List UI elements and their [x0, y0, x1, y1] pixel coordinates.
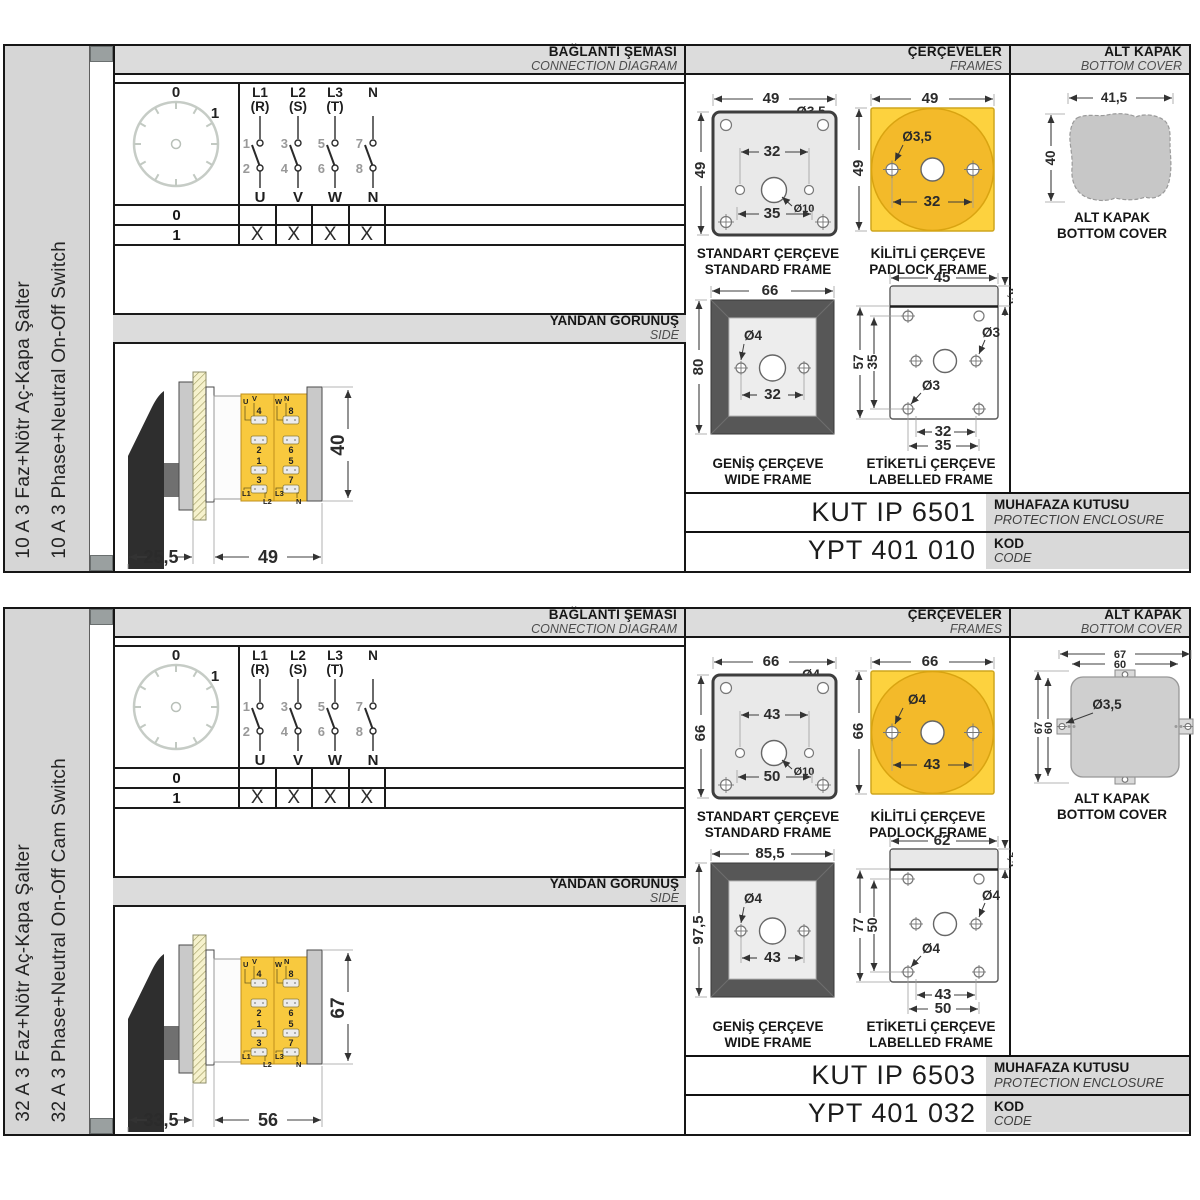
table-cell [277, 206, 314, 224]
phase-column-l3: L3(T) 56 W [318, 648, 344, 767]
svg-text:66: 66 [763, 653, 780, 670]
svg-text:L3: L3 [327, 648, 343, 663]
phase-column-n: N 78 N [356, 85, 379, 204]
header-frames-tr: ÇERÇEVELER [908, 45, 1002, 60]
svg-text:35: 35 [935, 437, 952, 454]
mounting-plate [179, 382, 193, 510]
svg-text:V: V [252, 394, 257, 403]
table-cell [240, 769, 277, 787]
table-cell [277, 769, 314, 787]
phase-column-l2: L2(S) 34 V [281, 85, 307, 204]
svg-text:45: 45 [934, 270, 951, 286]
svg-text:35: 35 [764, 205, 781, 222]
wide-frame-drawing: 85,5 97,5 Ø4 43 [693, 845, 843, 1015]
table-cell [240, 206, 277, 224]
svg-text:Ø3,5: Ø3,5 [1092, 697, 1122, 712]
switch-body: UV 42 13 L1L2 WN 86 57 L3N [241, 957, 307, 1069]
svg-text:N: N [368, 85, 378, 100]
row-label: 0 [115, 769, 240, 787]
svg-text:(T): (T) [326, 662, 343, 677]
dial-position-on: 1 [211, 105, 219, 122]
product-title-turkish: 32 A 3 Faz+Nötr Aç-Kapa Şalter [13, 844, 35, 1122]
svg-text:62: 62 [934, 833, 951, 849]
svg-text:32: 32 [764, 386, 781, 403]
standard-frame-drawing: 49 Ø3,5 49 32 Ø10 35 [693, 90, 843, 242]
rotary-dial-drawing: 0 1 [115, 647, 237, 767]
svg-text:(R): (R) [251, 662, 270, 677]
svg-text:L1: L1 [252, 648, 268, 663]
enclosure-label: MUHAFAZA KUTUSU PROTECTION ENCLOSURE [986, 494, 1189, 531]
end-cap [307, 387, 322, 501]
phase-column-l2: L2(S) 34 V [281, 648, 307, 767]
standard-frame-caption: STANDART ÇERÇEVESTANDARD FRAME [681, 246, 855, 277]
labelled-frame-drawing: 45 6,5 57 35 Ø3 Ø3 32 35 [848, 270, 1013, 455]
table-cell-empty [386, 789, 684, 807]
svg-text:9,5: 9,5 [1006, 851, 1013, 866]
svg-text:8: 8 [356, 161, 363, 176]
header-connection-tr: BAĞLANTI ŞEMASI [549, 608, 677, 623]
panel-wall-hatched [193, 372, 206, 520]
svg-text:6: 6 [288, 1008, 293, 1018]
svg-text:50: 50 [865, 917, 880, 932]
switch-handle [128, 951, 179, 1132]
product-panel: 10 A 3 Faz+Nötr Aç-Kapa Şalter 10 A 3 Ph… [3, 44, 1191, 573]
front-plate [206, 387, 214, 502]
header-connection-tr: BAĞLANTI ŞEMASI [549, 45, 677, 60]
svg-text:V: V [293, 189, 303, 204]
code-label: KOD CODE [986, 1096, 1189, 1133]
svg-text:(R): (R) [251, 99, 270, 114]
dimension-height: 40 [323, 387, 353, 501]
svg-text:L3: L3 [275, 489, 284, 498]
svg-text:1: 1 [243, 136, 250, 151]
svg-text:1: 1 [243, 699, 250, 714]
svg-text:66: 66 [762, 282, 779, 299]
svg-text:80: 80 [693, 359, 707, 376]
svg-text:41,5: 41,5 [1101, 90, 1128, 105]
svg-text:7: 7 [356, 699, 363, 714]
binder-mark-bottom [90, 555, 113, 571]
header-connection-diagram: BAĞLANTI ŞEMASI CONNECTION DIAGRAM [115, 46, 684, 75]
header-cover-en: BOTTOM COVER [1081, 623, 1182, 637]
table-cell: X [240, 789, 277, 807]
table-cell: X [277, 226, 314, 244]
svg-text:2: 2 [256, 1008, 261, 1018]
labelled-frame-caption: ETİKETLİ ÇERÇEVELABELLED FRAME [841, 456, 1021, 487]
rotary-dial-drawing: 0 1 [115, 84, 237, 204]
svg-text:L2: L2 [263, 497, 272, 506]
svg-text:W: W [275, 960, 283, 969]
enclosure-row: KUT IP 6501 MUHAFAZA KUTUSU PROTECTION E… [684, 492, 1189, 531]
svg-text:25,5: 25,5 [143, 547, 178, 567]
svg-text:N: N [368, 189, 379, 204]
svg-text:Ø10: Ø10 [794, 203, 815, 215]
front-plate [206, 950, 214, 1065]
svg-text:43: 43 [924, 756, 941, 773]
svg-text:L1: L1 [252, 85, 268, 100]
svg-text:6: 6 [318, 161, 325, 176]
svg-text:4: 4 [281, 161, 289, 176]
binder-strip [90, 609, 113, 1134]
svg-text:5: 5 [318, 136, 325, 151]
dimension-body-depth: 56 [214, 1066, 322, 1130]
table-cell: X [350, 226, 387, 244]
table-row: 0 [115, 206, 684, 226]
header-side-view: YANDAN GÖRÜNÜŞ SIDE [113, 313, 686, 344]
svg-text:2: 2 [243, 724, 250, 739]
svg-text:4: 4 [256, 406, 261, 416]
svg-text:35: 35 [865, 354, 880, 370]
header-frames-en: FRAMES [950, 623, 1002, 637]
svg-text:40: 40 [328, 434, 349, 455]
product-sidebar: 32 A 3 Faz+Nötr Aç-Kapa Şalter 32 A 3 Ph… [5, 609, 90, 1134]
svg-text:49: 49 [763, 90, 780, 107]
header-connection-diagram: BAĞLANTI ŞEMASI CONNECTION DIAGRAM [115, 609, 684, 638]
wide-frame-caption: GENİŞ ÇERÇEVEWIDE FRAME [681, 456, 855, 487]
svg-text:49: 49 [258, 547, 278, 567]
svg-text:N: N [296, 497, 301, 506]
table-cell-empty [386, 769, 684, 787]
svg-text:66: 66 [693, 725, 709, 742]
product-title-turkish: 10 A 3 Faz+Nötr Aç-Kapa Şalter [13, 281, 35, 559]
standard-frame-caption: STANDART ÇERÇEVESTANDARD FRAME [681, 809, 855, 840]
table-cell: X [313, 226, 350, 244]
svg-text:L1: L1 [242, 1052, 251, 1061]
header-cover-tr: ALT KAPAK [1104, 608, 1182, 623]
end-cap [307, 950, 322, 1064]
product-title-english: 10 A 3 Phase+Neutral On-Off Switch [49, 241, 71, 559]
svg-text:W: W [275, 397, 283, 406]
header-connection-en: CONNECTION DIAGRAM [531, 623, 677, 637]
table-row: 1 X X X X [115, 789, 684, 807]
svg-text:7: 7 [288, 1038, 293, 1048]
table-cell [313, 769, 350, 787]
contacts-drawing: L1(R) 12 U L2(S) 34 V L3(T) 56 W [240, 84, 684, 204]
svg-text:Ø4: Ø4 [744, 328, 763, 343]
svg-text:Ø3: Ø3 [922, 378, 941, 393]
connection-diagram-box: 0 1 L1(R) 12 U L2(S) 34 V L3(T) [113, 645, 686, 769]
table-cell: X [350, 789, 387, 807]
svg-text:6: 6 [318, 724, 325, 739]
svg-text:N: N [284, 957, 289, 966]
svg-text:4: 4 [281, 724, 289, 739]
header-cover-tr: ALT KAPAK [1104, 45, 1182, 60]
header-frames: ÇERÇEVELER FRAMES [686, 609, 1009, 638]
svg-text:V: V [293, 752, 303, 767]
padlock-frame-drawing: 66 66 Ø4 43 [853, 653, 1003, 805]
svg-text:67: 67 [328, 997, 349, 1018]
dial-position-on: 1 [211, 668, 219, 685]
svg-text:N: N [368, 648, 378, 663]
header-side-en: SIDE [650, 892, 679, 906]
phase-column-l1: L1(R) 12 U [243, 648, 270, 767]
svg-text:Ø4: Ø4 [908, 692, 927, 707]
svg-text:85,5: 85,5 [755, 845, 784, 862]
svg-text:L2: L2 [290, 648, 306, 663]
svg-text:3: 3 [281, 699, 288, 714]
svg-text:L1: L1 [242, 489, 251, 498]
svg-text:6,5: 6,5 [1006, 288, 1013, 303]
switching-table: 0 1 X X X X [113, 204, 686, 246]
svg-text:Ø4: Ø4 [744, 891, 763, 906]
standard-frame-drawing: 66 Ø4 66 43 Ø10 50 [693, 653, 843, 805]
header-cover-en: BOTTOM COVER [1081, 60, 1182, 74]
svg-text:3: 3 [256, 1038, 261, 1048]
header-connection-en: CONNECTION DIAGRAM [531, 60, 677, 74]
svg-text:1: 1 [256, 1019, 261, 1029]
header-side-tr: YANDAN GÖRÜNÜŞ [550, 314, 679, 329]
svg-text:60: 60 [1114, 659, 1126, 671]
product-code: YPT 401 010 [684, 533, 986, 570]
panel-wall-hatched [193, 935, 206, 1083]
svg-text:N: N [296, 1060, 301, 1069]
svg-text:97,5: 97,5 [693, 915, 707, 944]
code-row: YPT 401 032 KOD CODE [684, 1094, 1189, 1133]
product-sidebar: 10 A 3 Faz+Nötr Aç-Kapa Şalter 10 A 3 Ph… [5, 46, 90, 571]
table-row: 0 [115, 769, 684, 789]
order-codes: KUT IP 6501 MUHAFAZA KUTUSU PROTECTION E… [684, 492, 1189, 569]
connection-diagram-box: 0 1 L1(R) 12 U L2(S) 34 V L3(T) [113, 82, 686, 206]
svg-text:57: 57 [851, 354, 866, 369]
wide-frame-drawing: 66 80 Ø4 32 [693, 282, 843, 452]
svg-text:N: N [368, 752, 379, 767]
header-side-en: SIDE [650, 329, 679, 343]
svg-text:7: 7 [288, 475, 293, 485]
svg-text:49: 49 [922, 90, 939, 107]
switch-body: UV 42 13 L1L2 WN 86 57 L3N [241, 394, 307, 506]
svg-text:V: V [252, 957, 257, 966]
svg-text:2: 2 [256, 445, 261, 455]
svg-text:49: 49 [693, 162, 709, 179]
padlock-frame-drawing: 49 49 Ø3,5 32 [853, 90, 1003, 242]
header-side-tr: YANDAN GÖRÜNÜŞ [550, 877, 679, 892]
svg-text:Ø4: Ø4 [922, 941, 941, 956]
svg-text:L3: L3 [327, 85, 343, 100]
dimension-height: 67 [323, 950, 353, 1064]
header-side-view: YANDAN GÖRÜNÜŞ SIDE [113, 876, 686, 907]
code-row: YPT 401 010 KOD CODE [684, 531, 1189, 570]
switch-barrel [214, 396, 241, 499]
header-frames-en: FRAMES [950, 60, 1002, 74]
product-panel: 32 A 3 Faz+Nötr Aç-Kapa Şalter 32 A 3 Ph… [3, 607, 1191, 1136]
labelled-frame-drawing: 62 9,5 77 50 Ø4 Ø4 43 50 [848, 833, 1013, 1018]
svg-text:56: 56 [258, 1110, 278, 1130]
svg-text:5: 5 [288, 1019, 293, 1029]
svg-text:60: 60 [1043, 722, 1055, 734]
phase-column-l1: L1(R) 12 U [243, 85, 270, 204]
svg-text:Ø4: Ø4 [982, 888, 1001, 903]
header-bottom-cover: ALT KAPAK BOTTOM COVER [1011, 609, 1189, 638]
svg-text:66: 66 [853, 723, 867, 740]
svg-text:40: 40 [1043, 150, 1058, 165]
product-code: YPT 401 032 [684, 1096, 986, 1133]
phase-column-n: N 78 N [356, 648, 379, 767]
table-cell [350, 769, 387, 787]
svg-text:U: U [255, 189, 266, 204]
switching-table: 0 1 X X X X [113, 767, 686, 809]
svg-text:L3: L3 [275, 1052, 284, 1061]
svg-text:N: N [284, 394, 289, 403]
bottom-cover-drawing: 41,5 40 [1037, 90, 1187, 208]
svg-text:Ø10: Ø10 [794, 766, 815, 778]
svg-text:Ø3,5: Ø3,5 [902, 129, 932, 144]
svg-text:U: U [243, 960, 248, 969]
bottom-cover-caption: ALT KAPAKBOTTOM COVER [1037, 791, 1187, 822]
wide-frame-caption: GENİŞ ÇERÇEVEWIDE FRAME [681, 1019, 855, 1050]
row-label: 1 [115, 789, 240, 807]
svg-text:8: 8 [288, 969, 293, 979]
table-cell [350, 206, 387, 224]
dial-position-off: 0 [172, 647, 180, 664]
enclosure-label: MUHAFAZA KUTUSU PROTECTION ENCLOSURE [986, 1057, 1189, 1094]
binder-mark-bottom [90, 1118, 113, 1134]
table-cell [313, 206, 350, 224]
svg-text:66: 66 [922, 653, 939, 670]
table-cell: X [240, 226, 277, 244]
svg-text:U: U [255, 752, 266, 767]
side-view-drawing: UV 42 13 L1L2 WN 86 57 L3N 67 33,5 56 [113, 909, 686, 1132]
side-view-drawing: UV 42 13 L1L2 WN 86 57 L3N 40 25,5 49 [113, 346, 686, 569]
svg-text:1: 1 [256, 456, 261, 466]
svg-text:L2: L2 [290, 85, 306, 100]
svg-text:2: 2 [243, 161, 250, 176]
code-label: KOD CODE [986, 533, 1189, 570]
svg-text:Ø3: Ø3 [982, 325, 1001, 340]
svg-text:3: 3 [281, 136, 288, 151]
enclosure-code: KUT IP 6501 [684, 494, 986, 531]
svg-text:3: 3 [256, 475, 261, 485]
svg-text:5: 5 [318, 699, 325, 714]
svg-text:50: 50 [935, 1000, 952, 1017]
phase-column-l3: L3(T) 56 W [318, 85, 344, 204]
dial-position-off: 0 [172, 84, 180, 101]
svg-text:33,5: 33,5 [143, 1110, 178, 1130]
row-label: 0 [115, 206, 240, 224]
binder-strip [90, 46, 113, 571]
bottom-cover-drawing: 67 60 67 60 Ø3,5 [1031, 649, 1196, 789]
svg-text:U: U [243, 397, 248, 406]
svg-text:8: 8 [288, 406, 293, 416]
binder-mark-top [90, 46, 113, 62]
svg-text:43: 43 [764, 949, 781, 966]
svg-text:7: 7 [356, 136, 363, 151]
svg-text:W: W [328, 752, 343, 767]
table-row: 1 X X X X [115, 226, 684, 244]
switch-handle [128, 388, 179, 569]
svg-text:L2: L2 [263, 1060, 272, 1069]
labelled-frame-caption: ETİKETLİ ÇERÇEVELABELLED FRAME [841, 1019, 1021, 1050]
svg-text:W: W [328, 189, 343, 204]
contacts-drawing: L1(R) 12 U L2(S) 34 V L3(T) 56 W [240, 647, 684, 767]
table-cell: X [313, 789, 350, 807]
binder-mark-top [90, 609, 113, 625]
svg-text:32: 32 [764, 143, 781, 160]
enclosure-code: KUT IP 6503 [684, 1057, 986, 1094]
enclosure-row: KUT IP 6503 MUHAFAZA KUTUSU PROTECTION E… [684, 1055, 1189, 1094]
bottom-cover-caption: ALT KAPAKBOTTOM COVER [1037, 210, 1187, 241]
svg-text:(T): (T) [326, 99, 343, 114]
svg-text:(S): (S) [289, 662, 307, 677]
svg-text:32: 32 [924, 193, 941, 210]
table-cell: X [277, 789, 314, 807]
svg-text:43: 43 [764, 706, 781, 723]
header-frames: ÇERÇEVELER FRAMES [686, 46, 1009, 75]
svg-text:4: 4 [256, 969, 261, 979]
header-bottom-cover: ALT KAPAK BOTTOM COVER [1011, 46, 1189, 75]
svg-text:5: 5 [288, 456, 293, 466]
order-codes: KUT IP 6503 MUHAFAZA KUTUSU PROTECTION E… [684, 1055, 1189, 1132]
row-label: 1 [115, 226, 240, 244]
dimension-body-depth: 49 [214, 503, 322, 567]
svg-text:6: 6 [288, 445, 293, 455]
svg-text:(S): (S) [289, 99, 307, 114]
svg-text:49: 49 [853, 160, 867, 177]
table-cell-empty [386, 206, 684, 224]
svg-text:77: 77 [851, 917, 866, 932]
switch-barrel [214, 959, 241, 1062]
header-frames-tr: ÇERÇEVELER [908, 608, 1002, 623]
mounting-plate [179, 945, 193, 1073]
product-title-english: 32 A 3 Phase+Neutral On-Off Cam Switch [49, 758, 71, 1122]
table-cell-empty [386, 226, 684, 244]
svg-text:8: 8 [356, 724, 363, 739]
svg-text:50: 50 [764, 768, 781, 785]
